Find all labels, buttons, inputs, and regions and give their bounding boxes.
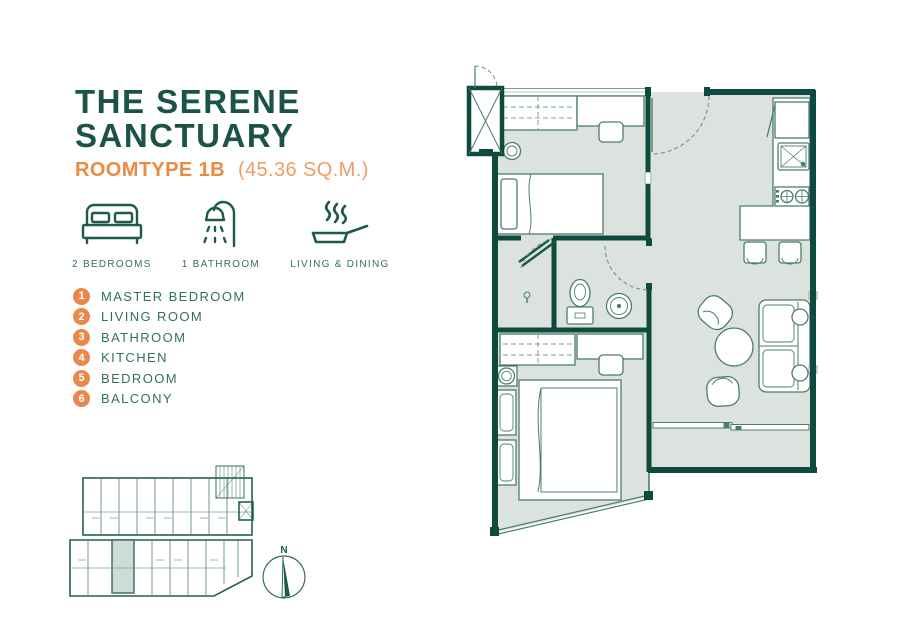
washing-machine: [504, 143, 521, 160]
feature-living-dining: LIVING & DINING: [290, 198, 390, 270]
sofa-pillow: [792, 365, 808, 381]
legend-number-badge: 4: [73, 349, 90, 366]
feature-bathrooms: 1 BATHROOM: [182, 196, 260, 270]
single-bed: [497, 174, 603, 234]
basin: [607, 294, 632, 319]
roomtype-subtitle: ROOMTYPE 1B (45.36 SQ.M.): [75, 159, 369, 182]
floorplan-brochure-page: THE SERENE SANCTUARY ROOMTYPE 1B (45.36 …: [0, 0, 905, 640]
key-plan-elevator: [239, 502, 253, 520]
cooktop: [775, 187, 809, 206]
page-title: THE SERENE SANCTUARY: [75, 85, 301, 153]
compass-needle: [283, 557, 290, 597]
legend-number-badge: 6: [73, 390, 90, 407]
key-plan-stairs: [216, 466, 244, 498]
legend-item-label: KITCHEN: [101, 350, 168, 365]
legend-item-label: BATHROOM: [101, 330, 186, 345]
ac-ledge: [469, 88, 502, 154]
building-key-plan: N: [56, 456, 308, 608]
legend-number-badge: 2: [73, 308, 90, 325]
feature-bedrooms: 2 BEDROOMS: [72, 200, 152, 270]
counter-stool: [744, 242, 766, 264]
legend-item-kitchen: 4 KITCHEN: [73, 348, 246, 369]
legend-item-label: MASTER BEDROOM: [101, 289, 246, 304]
legend-item-bathroom: 3 BATHROOM: [73, 327, 246, 348]
page-title-line2: SANCTUARY: [75, 117, 294, 154]
unit-floor-plan: [453, 50, 845, 550]
legend-item-label: BEDROOM: [101, 371, 178, 386]
legend-number-badge: 1: [73, 288, 90, 305]
nightstand: [497, 440, 516, 485]
legend-number-badge: 5: [73, 370, 90, 387]
roomtype-label: ROOMTYPE 1B: [75, 159, 225, 181]
round-table: [715, 328, 753, 366]
bed-icon: [80, 200, 144, 248]
armchair: [706, 376, 740, 407]
legend-item-label: BALCONY: [101, 391, 173, 406]
nightstand: [497, 390, 516, 435]
sofa-pillow: [792, 309, 808, 325]
ledge-door-swing: [475, 66, 497, 88]
shower-icon: [201, 196, 241, 248]
roomtype-area: (45.36 SQ.M.): [238, 159, 369, 181]
compass: N: [263, 545, 305, 598]
legend-item-bedroom: 5 BEDROOM: [73, 368, 246, 389]
legend-item-balcony: 6 BALCONY: [73, 389, 246, 410]
legend-item-master-bedroom: 1 MASTER BEDROOM: [73, 286, 246, 307]
feature-label: 2 BEDROOMS: [72, 259, 152, 270]
page-title-line1: THE SERENE: [75, 83, 301, 120]
fridge: [775, 102, 809, 138]
legend-item-living-room: 2 LIVING ROOM: [73, 307, 246, 328]
pan-icon: [307, 198, 373, 248]
legend-item-label: LIVING ROOM: [101, 309, 203, 324]
sofa: [759, 300, 810, 392]
counter-stool: [779, 242, 801, 264]
key-plan-highlighted-unit: [112, 540, 134, 593]
pillow: [501, 179, 517, 229]
compass-north-label: N: [280, 545, 287, 556]
desk-chair: [599, 122, 623, 142]
room-legend: 1 MASTER BEDROOM 2 LIVING ROOM 3 BATHROO…: [73, 286, 246, 409]
legend-number-badge: 3: [73, 329, 90, 346]
feature-label: LIVING & DINING: [290, 259, 390, 270]
feature-summary-row: 2 BEDROOMS 1 BATHROOM LIVING & DINING: [72, 196, 390, 270]
desk-chair: [599, 355, 623, 375]
feature-label: 1 BATHROOM: [182, 259, 260, 270]
interior-window: [645, 172, 651, 184]
kitchen-sink: [778, 143, 809, 170]
washing-machine: [499, 368, 515, 384]
double-bed: [519, 380, 621, 500]
